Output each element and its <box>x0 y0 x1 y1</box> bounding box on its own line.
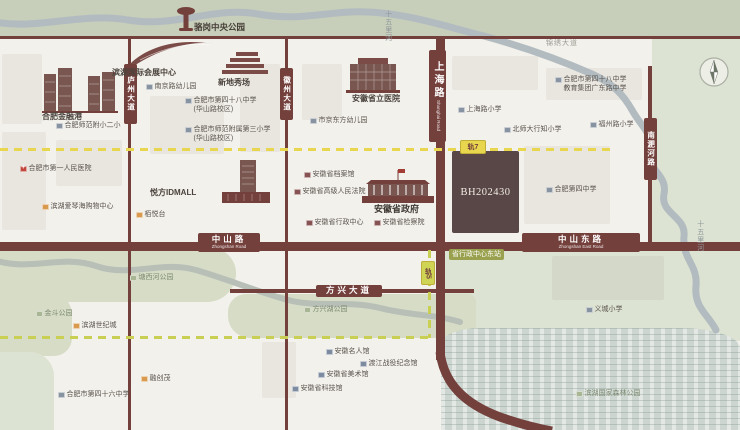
hefei-no48-middle-huashan-label: 合肥市第四十八中学(华山路校区) <box>185 97 257 115</box>
nanjing-road-kindergarten-label: 南京路幼儿园 <box>146 83 197 92</box>
jingdongfang-kindergarten-label-text: 市京东方幼儿园 <box>319 117 368 126</box>
school-icon <box>504 127 511 134</box>
baiyuetai-label: 栢悦台 <box>136 211 166 220</box>
shanghai-road-primary-label-text: 上海路小学 <box>467 106 502 115</box>
school-icon <box>310 118 317 125</box>
mall-icon <box>42 204 49 211</box>
xingzhi-primary-label: 北师大行知小学 <box>504 126 562 135</box>
fuzhou-road-primary-label-text: 福州路小学 <box>599 121 634 130</box>
baiyuetai-label-text: 栢悦台 <box>145 211 166 220</box>
hefei-no4-middle-label-text: 合肥第四中学 <box>555 186 597 195</box>
shiwuli-river-label-east-text: 十五里河 <box>695 220 704 252</box>
mall-icon <box>141 376 148 383</box>
dujiang-campaign-memorial-label-text: 渡江战役纪念馆 <box>369 360 418 369</box>
anhui-provincial-government-label-text: 安徽省政府 <box>374 204 419 215</box>
yuefang-idmall-label-text: 悦方IDMALL <box>150 188 196 198</box>
anhui-science-museum-label: 安徽省科技馆 <box>292 385 343 394</box>
rongchuangmao-label: 融创茂 <box>141 375 171 384</box>
anhui-provincial-hospital-label: 安徽省立医院 <box>352 94 400 104</box>
school-icon <box>185 127 192 134</box>
shiwuli-river-label-east: 十五里河 <box>695 220 704 252</box>
school-icon <box>56 123 63 130</box>
anhui-procuratorate-label: 安徽省检察院 <box>374 219 425 228</box>
location-map: BH202430 庐州大道徽州大道上海路Shanghai Road南淝河路中山路… <box>0 0 740 430</box>
hefei-no46-middle-label-text: 合肥市第四十六中学 <box>67 391 130 400</box>
hefei-normal-attached-primary-3-label-text: 合肥市师范附属第三小学(华山路校区) <box>194 126 271 144</box>
museum-icon <box>326 349 333 356</box>
park-icon <box>304 307 311 314</box>
anhui-science-museum-label-text: 安徽省科技馆 <box>301 385 343 394</box>
binhu-century-town-label: 滨湖世纪城 <box>73 322 117 331</box>
school-icon <box>555 77 562 84</box>
fuzhou-road-primary-label: 福州路小学 <box>590 121 634 130</box>
binhu-convention-center-label-text: 滨湖国际会展中心 <box>112 68 176 78</box>
school-icon <box>185 98 192 105</box>
anhui-admin-center-label: 安徽省行政中心 <box>306 219 364 228</box>
aegean-shopping-center-label-text: 滨湖爱琴海购物中心 <box>51 203 114 212</box>
hefei-normal-attached-primary-3-label: 合肥市师范附属第三小学(华山路校区) <box>185 126 271 144</box>
dujiang-campaign-memorial-label: 渡江战役纪念馆 <box>360 360 418 369</box>
jinxiu-avenue-label-text: 锦绣大道 <box>546 40 578 49</box>
mall-icon <box>136 212 143 219</box>
anhui-provincial-hospital-label-text: 安徽省立医院 <box>352 94 400 104</box>
hefei-first-peoples-hospital-label: 合肥市第一人民医院 <box>20 165 92 174</box>
rongchuangmao-label-text: 融创茂 <box>150 375 171 384</box>
gov-icon <box>374 220 381 227</box>
anhui-art-museum-label: 安徽省美术馆 <box>318 371 369 380</box>
binhu-century-town-label-text: 滨湖世纪城 <box>82 322 117 331</box>
hefei-no48-middle-huashan-label-text: 合肥市第四十八中学(华山路校区) <box>194 97 257 115</box>
museum-icon <box>360 361 367 368</box>
tangxihe-park-label: 塘西河公园 <box>130 274 174 283</box>
jingdongfang-kindergarten-label: 市京东方幼儿园 <box>310 117 368 126</box>
jindou-park-label: 金斗公园 <box>36 310 73 319</box>
anhui-celebrity-museum-label-text: 安徽名人馆 <box>335 348 370 357</box>
school-icon <box>590 122 597 129</box>
hefei-no46-middle-label: 合肥市第四十六中学 <box>58 391 130 400</box>
aegean-shopping-center-label: 滨湖爱琴海购物中心 <box>42 203 114 212</box>
shanghai-road-primary-label: 上海路小学 <box>458 106 502 115</box>
anhui-high-court-label-text: 安徽省高级人民法院 <box>303 188 366 197</box>
yicheng-primary-label-text: 义城小学 <box>595 306 623 315</box>
hefei-no48-middle-guangdong-label-text: 合肥市第四十八中学教育集团广东路中学 <box>564 76 627 94</box>
park-icon <box>576 391 583 398</box>
fangxinghu-park-label: 方兴湖公园 <box>304 306 348 315</box>
hospital-icon <box>20 166 27 173</box>
park-icon <box>130 275 137 282</box>
gov-icon <box>306 220 313 227</box>
gov-icon <box>304 172 311 179</box>
school-icon <box>146 84 153 91</box>
xindi-showplace-label: 新地秀场 <box>218 78 250 88</box>
hefei-no4-middle-label: 合肥第四中学 <box>546 186 597 195</box>
shiwuli-river-label-top: 十五里河 <box>383 10 392 42</box>
hefei-normal-attached-primary-2-label: 合肥师范附小二小 <box>56 122 121 131</box>
anhui-procuratorate-label-text: 安徽省检察院 <box>383 219 425 228</box>
jinxiu-avenue-label: 锦绣大道 <box>546 40 578 49</box>
nanjing-road-kindergarten-label-text: 南京路幼儿园 <box>155 83 197 92</box>
anhui-provincial-government-label: 安徽省政府 <box>374 204 419 215</box>
hefei-first-peoples-hospital-label-text: 合肥市第一人民医院 <box>29 165 92 174</box>
anhui-art-museum-label-text: 安徽省美术馆 <box>327 371 369 380</box>
school-icon <box>58 392 65 399</box>
school-icon <box>458 107 465 114</box>
fangxinghu-park-label-text: 方兴湖公园 <box>313 306 348 315</box>
gov-icon <box>294 189 301 196</box>
school-icon <box>586 307 593 314</box>
mall-icon <box>73 323 80 330</box>
tangxihe-park-label-text: 塘西河公园 <box>139 274 174 283</box>
binhu-forest-park-label-text: 滨湖国家森林公园 <box>585 390 641 399</box>
yicheng-primary-label: 义城小学 <box>586 306 623 315</box>
museum-icon <box>318 372 325 379</box>
hefei-no48-middle-guangdong-label: 合肥市第四十八中学教育集团广东路中学 <box>555 76 627 94</box>
luogang-central-park-label: 骆岗中央公园 <box>194 22 245 33</box>
luogang-central-park-label-text: 骆岗中央公园 <box>194 22 245 33</box>
school-icon <box>546 187 553 194</box>
poi-layer: 骆岗中央公园滨湖国际会展中心新地秀场合肥金融港悦方IDMALL安徽省立医院安徽省… <box>0 0 740 430</box>
jindou-park-label-text: 金斗公园 <box>45 310 73 319</box>
xindi-showplace-label-text: 新地秀场 <box>218 78 250 88</box>
anhui-celebrity-museum-label: 安徽名人馆 <box>326 348 370 357</box>
binhu-forest-park-label: 滨湖国家森林公园 <box>576 390 641 399</box>
museum-icon <box>292 386 299 393</box>
hefei-financial-port-label: 合肥金融港 <box>42 112 82 122</box>
anhui-admin-center-label-text: 安徽省行政中心 <box>315 219 364 228</box>
hefei-financial-port-label-text: 合肥金融港 <box>42 112 82 122</box>
anhui-high-court-label: 安徽省高级人民法院 <box>294 188 366 197</box>
park-icon <box>36 311 43 318</box>
anhui-archives-label-text: 安徽省档案馆 <box>313 171 355 180</box>
hefei-normal-attached-primary-2-label-text: 合肥师范附小二小 <box>65 122 121 131</box>
xingzhi-primary-label-text: 北师大行知小学 <box>513 126 562 135</box>
yuefang-idmall-label: 悦方IDMALL <box>150 188 196 198</box>
binhu-convention-center-label: 滨湖国际会展中心 <box>112 68 176 78</box>
shiwuli-river-label-top-text: 十五里河 <box>383 10 392 42</box>
anhui-archives-label: 安徽省档案馆 <box>304 171 355 180</box>
